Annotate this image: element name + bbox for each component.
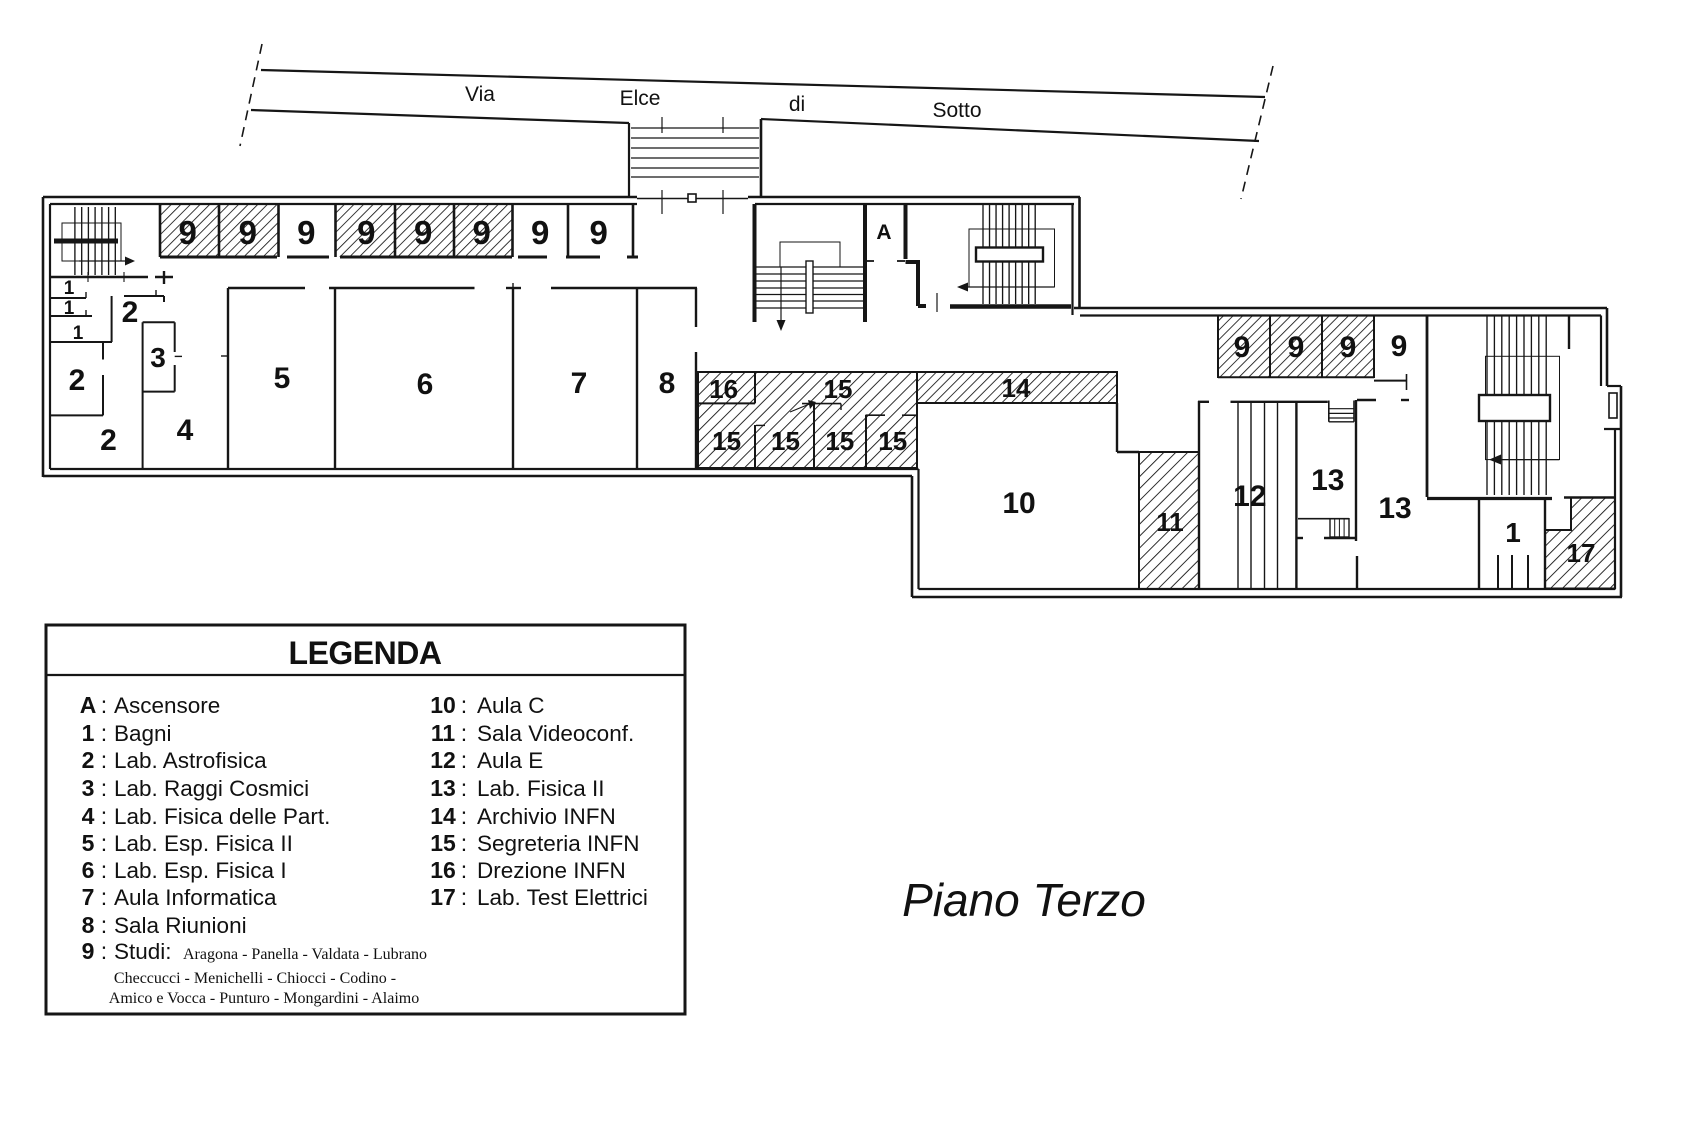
svg-text:Studi:: Studi: xyxy=(114,939,172,964)
svg-text:Lab. Astrofisica: Lab. Astrofisica xyxy=(114,748,267,773)
svg-text:Lab. Test Elettrici: Lab. Test Elettrici xyxy=(477,885,648,910)
svg-text:9: 9 xyxy=(1234,331,1251,364)
svg-text:14: 14 xyxy=(1002,373,1031,403)
svg-text::: : xyxy=(101,912,107,938)
svg-text:9: 9 xyxy=(82,938,95,964)
svg-text::: : xyxy=(461,747,467,773)
svg-text:9: 9 xyxy=(473,214,491,251)
svg-text:8: 8 xyxy=(82,912,95,938)
svg-text:9: 9 xyxy=(590,214,608,251)
svg-text:Ascensore: Ascensore xyxy=(114,693,220,718)
svg-text:17: 17 xyxy=(1567,538,1596,568)
svg-text::: : xyxy=(101,775,107,801)
svg-text:9: 9 xyxy=(1340,331,1357,364)
svg-text:Via: Via xyxy=(465,83,495,106)
svg-text:Sotto: Sotto xyxy=(932,99,981,122)
svg-text:9: 9 xyxy=(297,214,315,251)
svg-text:Archivio INFN: Archivio INFN xyxy=(477,804,616,829)
svg-text::: : xyxy=(101,720,107,746)
svg-text:9: 9 xyxy=(1391,330,1408,363)
svg-text:Lab. Fisica delle Part.: Lab. Fisica delle Part. xyxy=(114,804,330,829)
svg-text::: : xyxy=(461,775,467,801)
svg-text:16: 16 xyxy=(430,857,456,883)
svg-text:17: 17 xyxy=(430,884,456,910)
svg-text:11: 11 xyxy=(431,720,456,746)
svg-text::: : xyxy=(101,884,107,910)
svg-text:13: 13 xyxy=(1378,492,1411,525)
svg-text:10: 10 xyxy=(1002,487,1035,520)
svg-text::: : xyxy=(461,884,467,910)
svg-text:6: 6 xyxy=(82,857,95,883)
svg-text:Checcucci - Menichelli - Chioc: Checcucci - Menichelli - Chiocci - Codin… xyxy=(114,970,396,987)
svg-text::: : xyxy=(461,857,467,883)
svg-text:1: 1 xyxy=(73,323,84,344)
svg-text:Lab. Fisica II: Lab. Fisica II xyxy=(477,776,605,801)
svg-text:2: 2 xyxy=(100,424,117,457)
svg-text:16: 16 xyxy=(709,374,738,404)
svg-text:2: 2 xyxy=(122,296,139,329)
svg-text:LEGENDA: LEGENDA xyxy=(289,635,442,671)
svg-text:Lab. Esp. Fisica I: Lab. Esp. Fisica I xyxy=(114,858,287,883)
svg-text:10: 10 xyxy=(430,692,456,718)
svg-text:6: 6 xyxy=(417,368,434,401)
svg-text:Segreteria INFN: Segreteria INFN xyxy=(477,831,640,856)
svg-text:12: 12 xyxy=(1233,480,1266,513)
svg-text:15: 15 xyxy=(878,426,907,456)
svg-text:2: 2 xyxy=(82,747,95,773)
svg-text:1: 1 xyxy=(64,278,75,299)
svg-text::: : xyxy=(461,720,467,746)
svg-text:9: 9 xyxy=(531,214,549,251)
svg-text::: : xyxy=(101,803,107,829)
svg-text:Elce: Elce xyxy=(620,87,661,110)
svg-text::: : xyxy=(101,747,107,773)
svg-text:9: 9 xyxy=(239,214,257,251)
svg-text:9: 9 xyxy=(1288,331,1305,364)
svg-text:15: 15 xyxy=(430,830,456,856)
svg-text:Piano Terzo: Piano Terzo xyxy=(902,874,1146,926)
svg-text:Aragona - Panella - Valdata -: Aragona - Panella - Valdata - Lubrano xyxy=(183,946,427,963)
svg-text::: : xyxy=(461,830,467,856)
svg-text::: : xyxy=(101,857,107,883)
svg-text:1: 1 xyxy=(1505,517,1521,548)
svg-text:Amico e Vocca - Punturo - Mong: Amico e Vocca - Punturo - Mongardini - A… xyxy=(109,990,419,1007)
svg-text:3: 3 xyxy=(150,342,166,373)
svg-text:A: A xyxy=(80,692,97,718)
svg-text:14: 14 xyxy=(430,803,456,829)
svg-text:13: 13 xyxy=(430,775,456,801)
svg-text::: : xyxy=(461,803,467,829)
svg-text::: : xyxy=(101,938,107,964)
svg-text:Aula C: Aula C xyxy=(477,693,545,718)
svg-text:Aula Informatica: Aula Informatica xyxy=(114,885,277,910)
svg-text:5: 5 xyxy=(274,362,291,395)
svg-text:7: 7 xyxy=(571,367,588,400)
svg-text:15: 15 xyxy=(824,374,853,404)
svg-text:Sala Videoconf.: Sala Videoconf. xyxy=(477,721,634,746)
svg-text:15: 15 xyxy=(712,426,741,456)
svg-text:9: 9 xyxy=(179,214,197,251)
svg-text:Sala Riunioni: Sala Riunioni xyxy=(114,913,247,938)
svg-text:9: 9 xyxy=(414,214,432,251)
svg-text:di: di xyxy=(789,93,805,116)
svg-text:7: 7 xyxy=(82,884,95,910)
svg-text:2: 2 xyxy=(69,364,86,397)
svg-text:Aula E: Aula E xyxy=(477,748,543,773)
svg-text::: : xyxy=(461,692,467,718)
svg-text:1: 1 xyxy=(64,298,75,319)
svg-text:Lab. Raggi Cosmici: Lab. Raggi Cosmici xyxy=(114,776,309,801)
svg-text:11: 11 xyxy=(1156,507,1184,537)
svg-text:15: 15 xyxy=(825,426,854,456)
svg-text:4: 4 xyxy=(177,414,194,447)
svg-text:5: 5 xyxy=(82,830,95,856)
svg-text:9: 9 xyxy=(357,214,375,251)
svg-text:1: 1 xyxy=(82,720,95,746)
svg-text:Bagni: Bagni xyxy=(114,721,172,746)
svg-text:3: 3 xyxy=(82,775,95,801)
svg-text:A: A xyxy=(876,221,891,244)
svg-text:13: 13 xyxy=(1311,464,1344,497)
svg-text:Drezione INFN: Drezione INFN xyxy=(477,858,626,883)
svg-text:8: 8 xyxy=(659,367,676,400)
svg-text:15: 15 xyxy=(771,426,800,456)
svg-text::: : xyxy=(101,830,107,856)
svg-text::: : xyxy=(101,692,107,718)
svg-text:12: 12 xyxy=(430,747,456,773)
svg-text:Lab. Esp. Fisica II: Lab. Esp. Fisica II xyxy=(114,831,293,856)
svg-text:4: 4 xyxy=(82,803,95,829)
